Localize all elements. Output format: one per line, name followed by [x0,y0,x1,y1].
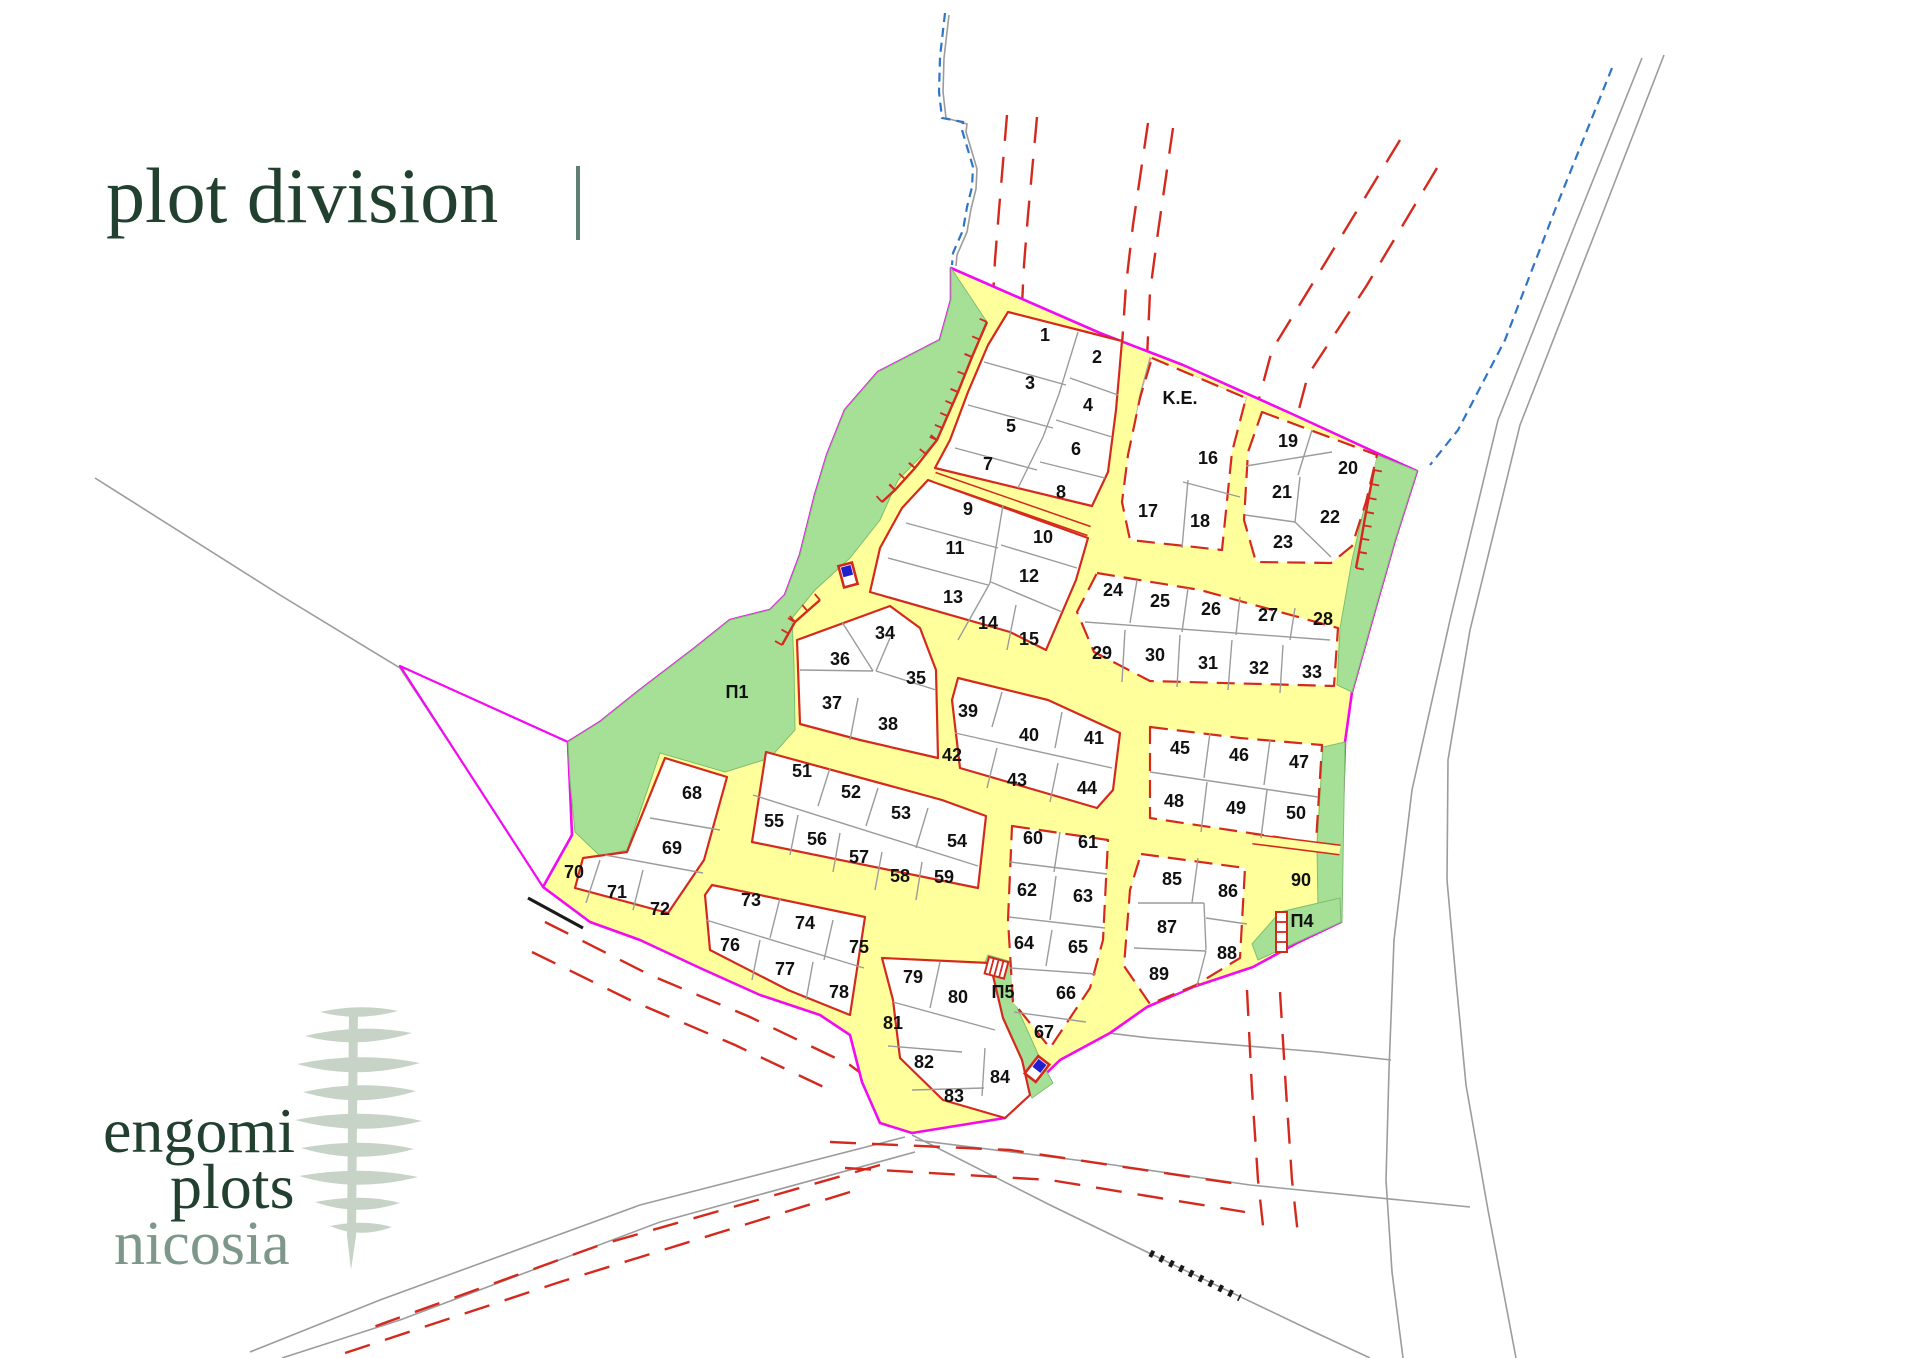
plot-number: 55 [764,811,784,831]
plot-number: 89 [1149,964,1169,984]
plot-number: 79 [903,967,923,987]
plot-number: 13 [943,587,963,607]
plot-number: 2 [1092,347,1102,367]
plot-number: 4 [1083,395,1093,415]
plot-number: 74 [795,913,815,933]
stream-line [1430,68,1612,465]
plot-number: 17 [1138,501,1158,521]
plot-number: 85 [1162,869,1182,889]
plot-number: 86 [1218,881,1238,901]
plot-number: 37 [822,693,842,713]
plot-number: 19 [1278,431,1298,451]
plot-number: 77 [775,959,795,979]
map-svg: 1234567891011121314151617181920212223242… [0,0,1920,1358]
plot-number: 60 [1023,828,1043,848]
plot-number: 71 [607,882,627,902]
plot-number: 67 [1034,1022,1054,1042]
road-corridor-dashed [1247,990,1264,1235]
plot-number: 23 [1273,532,1293,552]
plot-number: 36 [830,649,850,669]
plot-number: 3 [1025,373,1035,393]
plot-number: 33 [1302,662,1322,682]
plot-number: 25 [1150,591,1170,611]
plot-number: 16 [1198,448,1218,468]
plot-number: 70 [564,862,584,882]
plot-number: 22 [1320,507,1340,527]
plot-number: 41 [1084,728,1104,748]
plot-number: 20 [1338,458,1358,478]
plot-number: 46 [1229,745,1249,765]
plot-number: 57 [849,847,869,867]
page-title: plot division [106,152,498,239]
plot-number: 63 [1073,886,1093,906]
plot-number: 53 [891,803,911,823]
plot-number: 7 [983,454,993,474]
plot-number: 5 [1006,416,1016,436]
plot-number: 8 [1056,482,1066,502]
plot-number: 10 [1033,527,1053,547]
road-corridor-dashed [1022,117,1037,305]
plot-number: 9 [963,499,973,519]
plot-number: 24 [1103,580,1123,600]
area-label: Π4 [1290,911,1313,931]
plot-number: 47 [1289,752,1309,772]
plot-number: 52 [841,782,861,802]
plot-number: 73 [741,890,761,910]
road-corridor-dashed [1280,992,1298,1235]
plot-number: 66 [1056,983,1076,1003]
plot-number: 54 [947,831,967,851]
road-corridor-dashed [845,1168,1245,1212]
plot-number: 26 [1201,599,1221,619]
plot-number: 35 [906,668,926,688]
tree-icon [295,1007,422,1270]
gray-road [1447,55,1664,1358]
plot-number: 38 [878,714,898,734]
plot-number: 68 [682,783,702,803]
plot-number: 78 [829,982,849,1002]
plot-number: 28 [1313,609,1333,629]
plot-number: 51 [792,761,812,781]
plot-number: 56 [807,829,827,849]
road-corridor-dashed [993,115,1007,297]
plot-number: 32 [1249,658,1269,678]
plot-number: 48 [1164,791,1184,811]
plot-number: 72 [650,899,670,919]
plot-number: 80 [948,987,968,1007]
road-corridor-dashed [1290,168,1437,443]
plot-number: 18 [1190,511,1210,531]
plot-number: 44 [1077,778,1097,798]
plot-number: 90 [1291,870,1311,890]
plot-number: 21 [1272,482,1292,502]
area-label: Π1 [725,682,748,702]
plot-number: 87 [1157,917,1177,937]
plot-number: 15 [1019,629,1039,649]
logo: engomi plots nicosia [103,1007,422,1278]
road-corridor-dashed [1252,140,1400,425]
plot-number: 34 [875,623,895,643]
plot-number: 75 [849,937,869,957]
plot-number: 50 [1286,803,1306,823]
steps-symbol [985,957,1009,979]
plot-number: 62 [1017,880,1037,900]
plot-number: 49 [1226,798,1246,818]
plot-division-page: 1234567891011121314151617181920212223242… [0,0,1920,1358]
plot-number: 43 [1007,770,1027,790]
site-boundary-wing [400,666,572,887]
area-label: Π5 [991,982,1014,1002]
gray-road [1386,58,1642,1358]
plot-number: 39 [958,701,978,721]
plot-number: 29 [1092,643,1112,663]
area-label: K.E. [1162,388,1197,408]
plot-number: 65 [1068,937,1088,957]
plot-number: 76 [720,935,740,955]
gray-road [943,15,977,266]
plot-number: 69 [662,838,682,858]
plot-divider [800,670,873,671]
plot-number: 64 [1014,933,1034,953]
plot-block [1124,854,1245,1004]
plot-number: 30 [1145,645,1165,665]
logo-nicosia: nicosia [114,1210,290,1278]
plot-number: 14 [978,613,998,633]
plot-number: 58 [890,866,910,886]
plot-number: 84 [990,1067,1010,1087]
plot-number: 12 [1019,566,1039,586]
plot-number: 59 [934,867,954,887]
road-corridor-dashed [365,1165,880,1330]
road-corridor-dashed [1122,123,1148,345]
plot-number: 81 [883,1013,903,1033]
plot-number: 45 [1170,738,1190,758]
plot-number: 6 [1071,439,1081,459]
plot-number: 61 [1078,832,1098,852]
plot-number: 40 [1019,725,1039,745]
plot-number: 1 [1040,325,1050,345]
plot-number: 83 [944,1086,964,1106]
road-corridor-dashed [1147,128,1173,358]
steps-symbol [1276,912,1287,952]
road-corridor-dashed [330,1192,850,1358]
plot-number: 88 [1217,943,1237,963]
gray-road [95,478,543,885]
plot-number: 82 [914,1052,934,1072]
plot-number: 42 [942,745,962,765]
plot-number: 27 [1258,605,1278,625]
plot-number: 11 [945,538,964,558]
plot-number: 31 [1198,653,1218,673]
